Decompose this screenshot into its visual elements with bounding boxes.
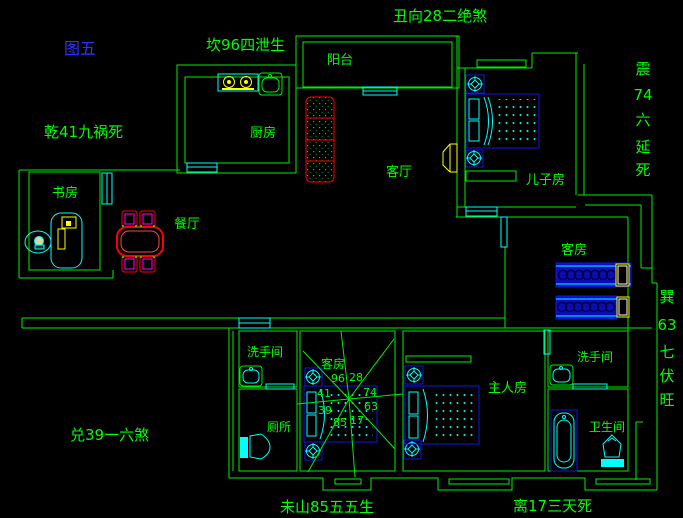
toilet-icon <box>240 434 270 459</box>
annotation-south-left: 未山85五五生 <box>280 498 374 516</box>
vertical-char: 旺 <box>659 391 674 409</box>
vertical-char: 震 <box>635 60 650 78</box>
nightstand-lamp <box>405 366 423 384</box>
cad-floorplan-canvas: 图五 坎96四泄生 丑向28二绝煞 乾41九祸死 兑39一六煞 未山85五五生 … <box>0 0 683 518</box>
room-label-kitchen: 厨房 <box>250 125 276 141</box>
wall-footing-bar <box>449 479 509 484</box>
dining-chairs <box>122 211 155 272</box>
wall-balcony-outer <box>296 36 459 88</box>
vertical-char: 63 <box>657 316 676 334</box>
wall-segment <box>229 478 657 490</box>
bathtub-icon <box>551 410 577 471</box>
dining-table <box>117 227 163 256</box>
compass-number: 41 <box>317 387 331 400</box>
room-label-guest-center: 客房 <box>321 356 345 371</box>
room-label-wc: 厕所 <box>267 420 291 434</box>
room-label-study: 书房 <box>52 185 78 201</box>
bed-son <box>466 94 539 148</box>
annotation-south-right: 离17三天死 <box>513 497 592 515</box>
floorplan-drawing: 图五 坎96四泄生 丑向28二绝煞 乾41九祸死 兑39一六煞 未山85五五生 … <box>0 0 683 518</box>
guest-right-beds <box>556 263 631 319</box>
bed-guest-2 <box>556 296 629 319</box>
wall-segment <box>578 195 657 490</box>
kitchen-window <box>187 163 217 172</box>
wall-footing-bar <box>596 479 650 484</box>
vertical-char: 死 <box>635 161 650 179</box>
room-label-son: 儿子房 <box>526 172 565 188</box>
windows <box>102 87 497 328</box>
compass-number: 17 <box>350 414 364 427</box>
wardrobe <box>477 60 526 67</box>
vertical-char: 七 <box>659 343 674 361</box>
annotation-top-center: 丑向28二绝煞 <box>393 7 487 25</box>
annotation-southeast-vertical: 巽 63 七 伏 旺 <box>657 288 676 409</box>
nightstand-lamp <box>404 440 421 459</box>
tv-icon <box>443 144 457 172</box>
room-label-bath: 卫生间 <box>589 420 625 434</box>
vertical-char: 延 <box>635 138 650 156</box>
compass-number: 63 <box>364 400 378 413</box>
room-label-dining: 餐厅 <box>174 216 200 232</box>
bed-guest-1 <box>556 263 631 287</box>
annotation-northwest: 乾41九祸死 <box>44 123 123 141</box>
vertical-char: 74 <box>633 86 652 104</box>
annotation-west: 兑39一六煞 <box>70 426 149 444</box>
vertical-char: 六 <box>635 111 650 129</box>
nightstand-lamp <box>305 368 322 386</box>
vertical-char: 巽 <box>659 288 674 306</box>
dining-chair <box>140 256 155 272</box>
room-label-balcony: 阳台 <box>327 53 353 68</box>
kitchen-sink-icon <box>259 73 282 95</box>
dining-chair <box>122 256 137 272</box>
room-label-master: 主人房 <box>488 380 527 396</box>
nightstand-lamp <box>466 150 483 167</box>
room-label-guest-right: 客房 <box>561 242 587 258</box>
sink-icon <box>550 365 573 385</box>
corridor-window <box>239 318 270 328</box>
labels: 图五 坎96四泄生 丑向28二绝煞 乾41九祸死 兑39一六煞 未山85五五生 … <box>44 7 677 516</box>
study-desk <box>51 213 82 268</box>
study-window <box>102 173 112 204</box>
wardrobe <box>406 356 471 362</box>
dining-chair <box>140 211 155 227</box>
wardrobe <box>466 171 516 181</box>
wall-balcony-inner <box>303 42 452 87</box>
room-label-wash-right: 洗手间 <box>577 350 613 364</box>
nightstand-lamp <box>466 75 484 93</box>
compass-number: 28 <box>349 371 363 384</box>
room-label-living: 客厅 <box>386 164 412 180</box>
bed-master <box>405 386 479 444</box>
room-label-wash-left: 洗手间 <box>247 345 283 359</box>
compass-number: 74 <box>363 386 377 399</box>
sofa <box>306 97 334 182</box>
annotation-east-vertical: 震 74 六 延 死 <box>633 60 652 179</box>
son-room-window <box>466 207 497 216</box>
wall-segment <box>229 328 233 478</box>
son-room-furniture <box>466 60 539 181</box>
annotation-north: 坎96四泄生 <box>206 36 285 54</box>
vertical-char: 伏 <box>659 367 674 385</box>
guest-right-door <box>501 217 507 247</box>
sink-icon <box>240 366 262 386</box>
master-furniture <box>404 356 479 459</box>
compass-number: 39 <box>318 404 332 417</box>
toilet-icon <box>601 435 624 467</box>
dining-chair <box>122 211 137 227</box>
page-title: 图五 <box>64 39 96 58</box>
wall-washroom-left <box>239 331 297 387</box>
wall-footing-bar <box>335 479 361 484</box>
compass-number: 96 <box>331 372 345 385</box>
compass-number: 85 <box>333 416 347 429</box>
